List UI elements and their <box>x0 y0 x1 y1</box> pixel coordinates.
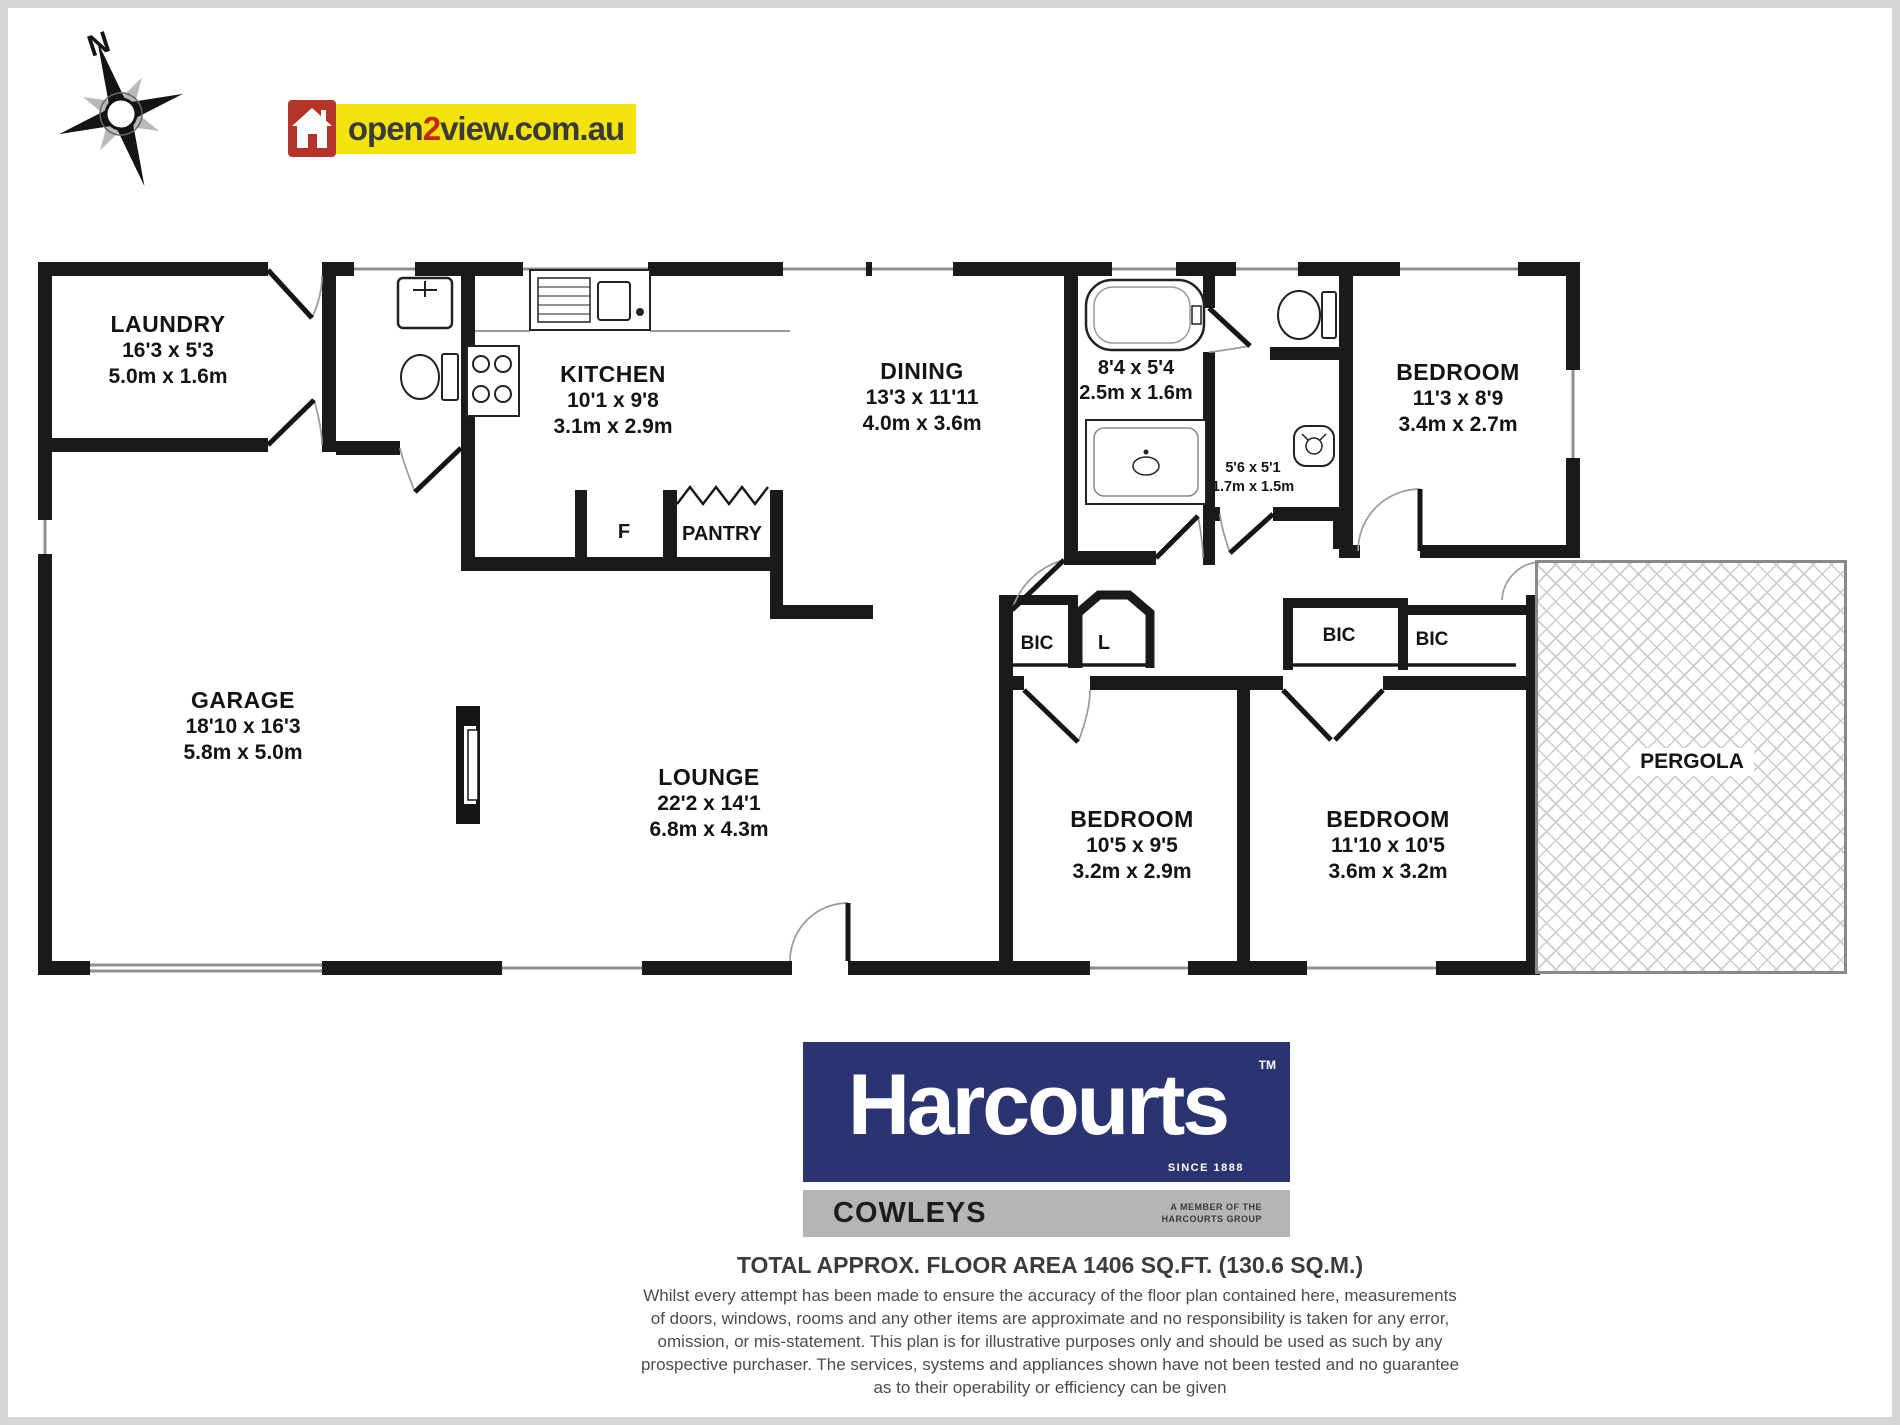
bedroom3-imperial: 11'10 x 10'5 <box>1326 833 1450 859</box>
dining-name: DINING <box>862 358 981 385</box>
disclaimer: Whilst every attempt has been made to en… <box>400 1284 1700 1399</box>
bathroom-vanity-icon <box>1086 420 1206 504</box>
room-label-laundry: LAUNDRY 16'3 x 5'3 5.0m x 1.6m <box>108 311 227 390</box>
room-label-toilet: 5'6 x 5'1 1.7m x 1.5m <box>1212 459 1294 497</box>
linen-closet-outline <box>1078 595 1150 668</box>
room-label-bedroom3: BEDROOM 11'10 x 10'5 3.6m x 3.2m <box>1326 806 1450 885</box>
garage-door <box>456 706 480 824</box>
room-label-lounge: LOUNGE 22'2 x 14'1 6.8m x 4.3m <box>649 764 768 843</box>
pantry-label: PANTRY <box>682 523 762 546</box>
toilet-icon-wc <box>1278 291 1336 339</box>
room-label-kitchen: KITCHEN 10'1 x 9'8 3.1m x 2.9m <box>553 361 672 440</box>
room-label-bathroom: 8'4 x 5'4 2.5m x 1.6m <box>1079 356 1192 406</box>
toilet-imperial: 5'6 x 5'1 <box>1212 459 1294 478</box>
basin-icon <box>1294 426 1334 466</box>
total-floor-area: TOTAL APPROX. FLOOR AREA 1406 SQ.FT. (13… <box>400 1252 1700 1279</box>
bedroom3-name: BEDROOM <box>1326 806 1450 833</box>
laundry-tub-icon <box>398 278 452 328</box>
lounge-name: LOUNGE <box>649 764 768 791</box>
office-name: COWLEYS <box>833 1197 987 1230</box>
harcourts-tm: TM <box>1259 1058 1276 1072</box>
garage-metric: 5.8m x 5.0m <box>183 740 302 766</box>
disclaimer-line-5: as to their operability or efficiency ca… <box>400 1376 1700 1399</box>
bic-label-3: BIC <box>1416 629 1449 651</box>
kitchen-sink-icon <box>530 270 650 330</box>
kitchen-name: KITCHEN <box>553 361 672 388</box>
bedroom2-metric: 3.2m x 2.9m <box>1070 859 1194 885</box>
linen-label: L <box>1098 632 1110 655</box>
bedroom1-metric: 3.4m x 2.7m <box>1396 412 1520 438</box>
garage-name: GARAGE <box>183 687 302 714</box>
fridge-label: F <box>618 521 630 544</box>
member-text: A MEMBER OF THE HARCOURTS GROUP <box>1161 1201 1262 1225</box>
room-label-garage: GARAGE 18'10 x 16'3 5.8m x 5.0m <box>183 687 302 766</box>
disclaimer-line-1: Whilst every attempt has been made to en… <box>400 1284 1700 1307</box>
bedroom1-imperial: 11'3 x 8'9 <box>1396 386 1520 412</box>
bedroom1-name: BEDROOM <box>1396 359 1520 386</box>
garage-imperial: 18'10 x 16'3 <box>183 714 302 740</box>
lounge-imperial: 22'2 x 14'1 <box>649 791 768 817</box>
disclaimer-line-4: prospective purchaser. The services, sys… <box>400 1353 1700 1376</box>
member-line-2: HARCOURTS GROUP <box>1161 1213 1262 1225</box>
floorplan-page: N open2view.com.au <box>0 0 1900 1425</box>
laundry-name: LAUNDRY <box>108 311 227 338</box>
bathroom-imperial: 8'4 x 5'4 <box>1079 356 1192 381</box>
room-label-pergola: PERGOLA <box>1630 748 1754 776</box>
member-line-1: A MEMBER OF THE <box>1161 1201 1262 1213</box>
stove-icon <box>467 346 519 416</box>
room-label-bedroom1: BEDROOM 11'3 x 8'9 3.4m x 2.7m <box>1396 359 1520 438</box>
bathtub-icon <box>1086 280 1204 350</box>
laundry-imperial: 16'3 x 5'3 <box>108 338 227 364</box>
toilet-icon-laundry <box>401 354 458 400</box>
bathroom-metric: 2.5m x 1.6m <box>1079 381 1192 406</box>
room-label-bedroom2: BEDROOM 10'5 x 9'5 3.2m x 2.9m <box>1070 806 1194 885</box>
bedroom3-metric: 3.6m x 3.2m <box>1326 859 1450 885</box>
bic-label-1: BIC <box>1021 633 1054 655</box>
harcourts-since: SINCE 1888 <box>1168 1162 1244 1174</box>
laundry-metric: 5.0m x 1.6m <box>108 364 227 390</box>
harcourts-name: Harcourts <box>803 1056 1272 1155</box>
toilet-metric: 1.7m x 1.5m <box>1212 478 1294 497</box>
bic-label-2: BIC <box>1323 625 1356 647</box>
room-label-dining: DINING 13'3 x 11'11 4.0m x 3.6m <box>862 358 981 437</box>
pantry-shelf-zigzag <box>677 487 768 504</box>
dining-imperial: 13'3 x 11'11 <box>862 385 981 411</box>
kitchen-metric: 3.1m x 2.9m <box>553 414 672 440</box>
harcourts-logo: Harcourts TM SINCE 1888 <box>803 1042 1290 1182</box>
dining-metric: 4.0m x 3.6m <box>862 411 981 437</box>
lounge-metric: 6.8m x 4.3m <box>649 817 768 843</box>
kitchen-imperial: 10'1 x 9'8 <box>553 388 672 414</box>
disclaimer-line-2: of doors, windows, rooms and any other i… <box>400 1307 1700 1330</box>
bedroom2-name: BEDROOM <box>1070 806 1194 833</box>
disclaimer-line-3: omission, or mis-statement. This plan is… <box>400 1330 1700 1353</box>
bedroom2-imperial: 10'5 x 9'5 <box>1070 833 1194 859</box>
harcourts-office-bar: COWLEYS A MEMBER OF THE HARCOURTS GROUP <box>803 1190 1290 1237</box>
